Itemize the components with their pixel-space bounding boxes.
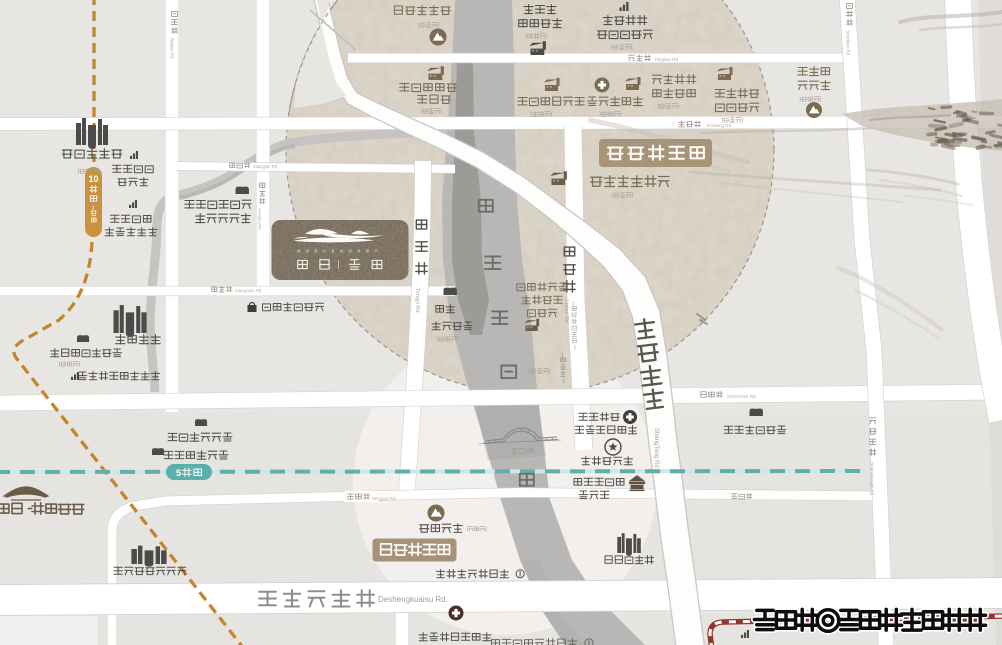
svg-text:XiangjingRd: XiangjingRd [258,208,263,230]
svg-text:5: 5 [176,468,182,479]
svg-text:Jinchang Rd: Jinchang Rd [706,123,732,128]
svg-text:Xiangyun Rd: Xiangyun Rd [253,164,278,169]
svg-text:ShangTang Rd: ShangTang Rd [653,428,659,468]
svg-text:Dengyun Rd: Dengyun Rd [372,496,396,501]
svg-text:Beilian Rd: Beilian Rd [170,38,175,59]
svg-text:Tongyi Rd: Tongyi Rd [414,288,420,312]
svg-text:Xiangyuan Rd: Xiangyuan Rd [235,288,262,293]
svg-text:Pinglian Rd: Pinglian Rd [655,57,679,62]
svg-text:10: 10 [88,174,98,184]
svg-text:SHIXIANG RD: SHIXIANG RD [727,394,757,399]
svg-text:Deshengkuaisu Rd.: Deshengkuaisu Rd. [378,595,448,604]
svg-text:Lishui Rd: Lishui Rd [563,300,569,323]
svg-text:HuanchengE Rd: HuanchengE Rd [870,462,875,496]
svg-text:Shenban Rd: Shenban Rd [846,30,851,56]
